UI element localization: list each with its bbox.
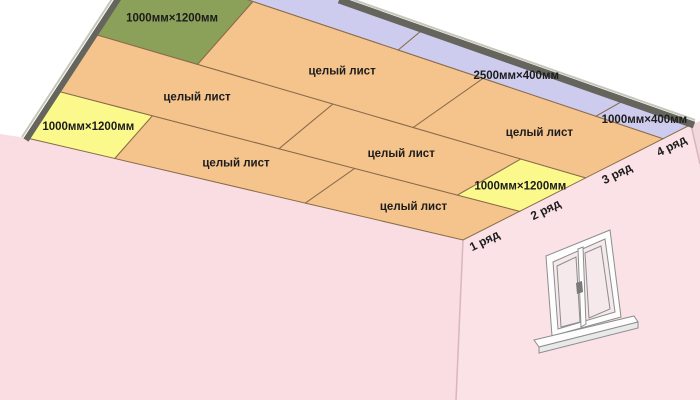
sheet-label: целый лист bbox=[380, 201, 448, 213]
sheet-label: 1000мм×400мм bbox=[602, 114, 688, 126]
sheet-label: целый лист bbox=[506, 127, 574, 139]
sheet-label: целый лист bbox=[202, 158, 270, 170]
sheet-label: целый лист bbox=[308, 66, 376, 78]
sheet-label: 1000мм×1200мм bbox=[42, 121, 134, 133]
window-handle-icon bbox=[576, 281, 583, 294]
sheet-label: целый лист bbox=[163, 92, 231, 104]
sheet-label: 1000мм×1200мм bbox=[126, 12, 218, 24]
sheet-label: 2500мм×400мм bbox=[473, 70, 559, 82]
sheet-label: целый лист bbox=[368, 148, 436, 160]
scene-svg: 1000мм×1200ммцелый листцелый лист1 рядце… bbox=[0, 0, 700, 400]
sheet-label: 1000мм×1200мм bbox=[474, 181, 566, 193]
ceiling-layout-diagram: 1000мм×1200ммцелый листцелый лист1 рядце… bbox=[0, 0, 700, 400]
